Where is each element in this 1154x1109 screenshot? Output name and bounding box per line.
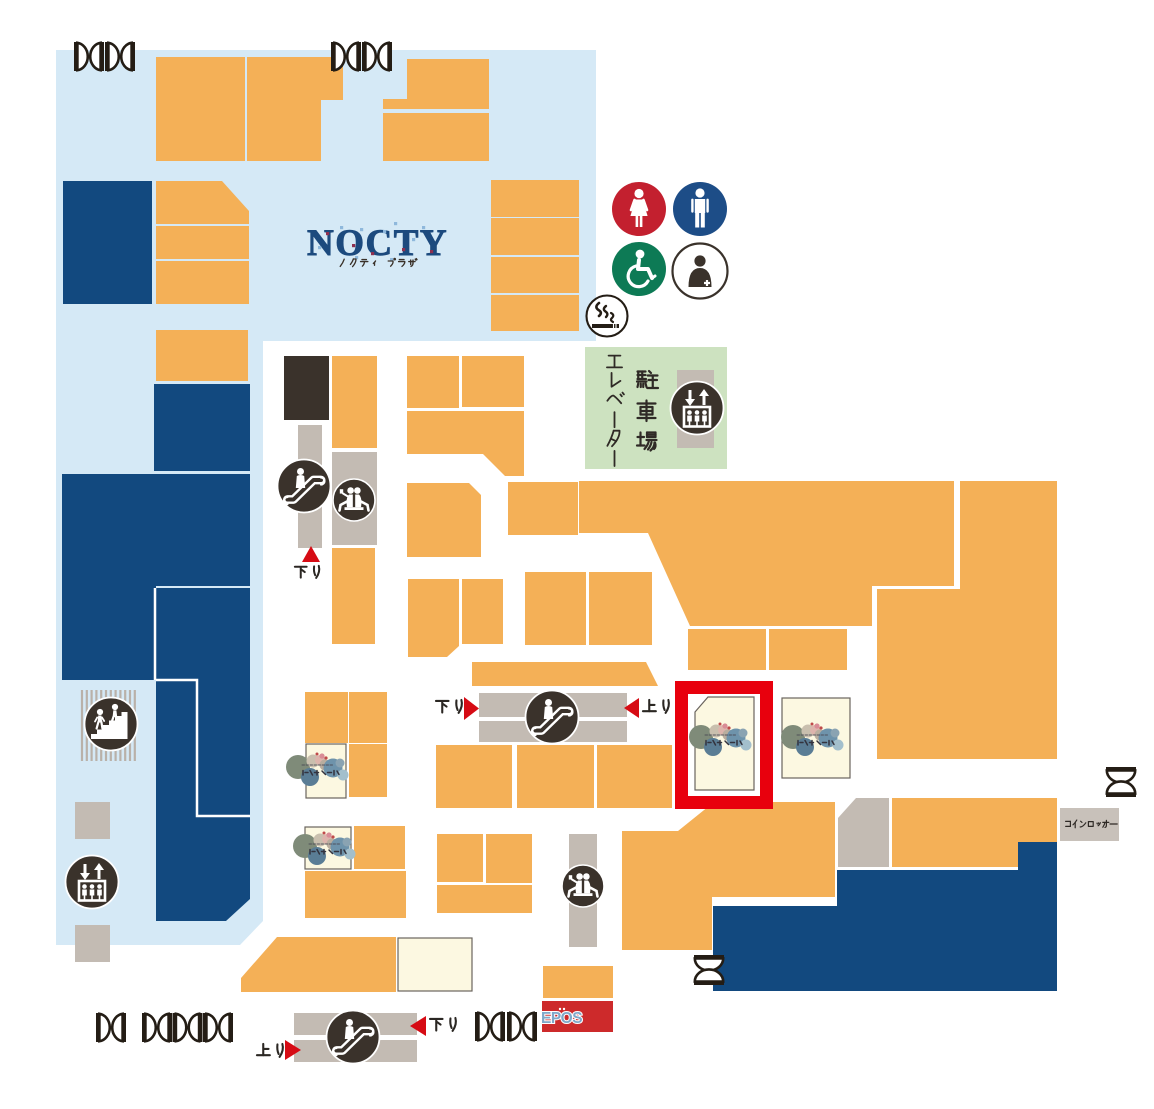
svg-text:EPOS: EPOS [541, 1010, 582, 1027]
svg-text:NOCTY: NOCTY [307, 223, 448, 264]
